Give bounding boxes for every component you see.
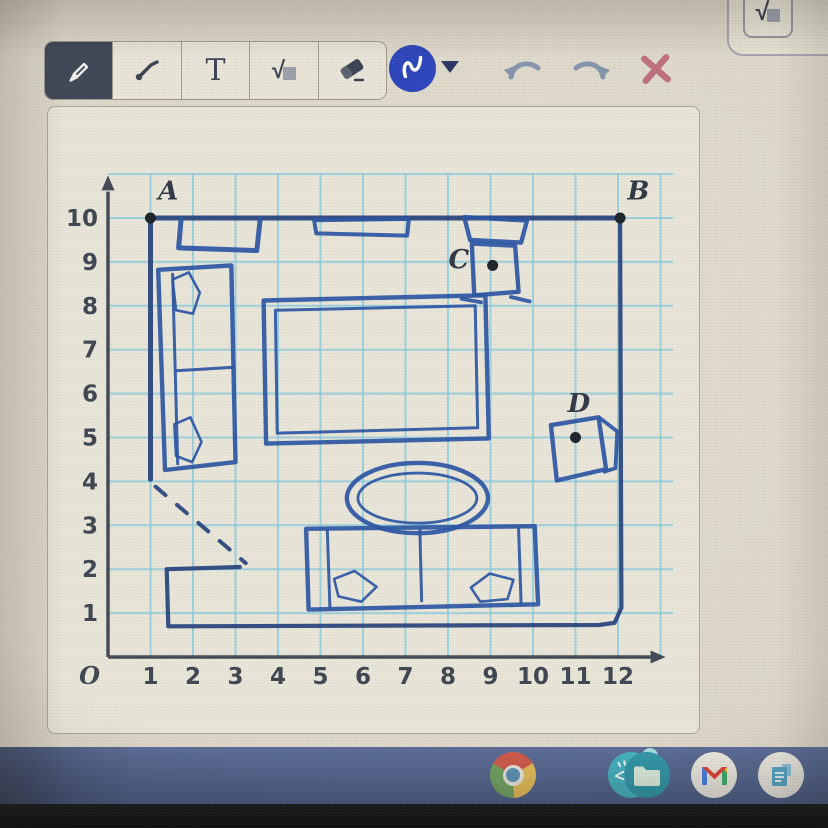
svg-text:4: 4 xyxy=(270,664,286,690)
svg-text:1: 1 xyxy=(142,664,158,690)
clear-button[interactable] xyxy=(638,52,674,88)
svg-text:10: 10 xyxy=(66,206,98,232)
pencil-tool-button[interactable] xyxy=(45,42,113,99)
svg-text:C: C xyxy=(449,245,470,275)
eraser-icon xyxy=(335,54,369,87)
tool-group: T √ xyxy=(44,41,387,100)
svg-text:O: O xyxy=(79,661,100,690)
text-tool-button[interactable]: T xyxy=(182,42,250,99)
sqrt-insert-icon: √ xyxy=(756,0,781,25)
redo-button[interactable] xyxy=(569,50,613,88)
svg-text:3: 3 xyxy=(227,664,243,690)
svg-text:8: 8 xyxy=(440,664,456,690)
svg-text:9: 9 xyxy=(482,664,498,690)
svg-text:1: 1 xyxy=(82,601,98,627)
pencil-icon xyxy=(64,54,94,87)
svg-text:11: 11 xyxy=(559,664,591,690)
svg-text:5: 5 xyxy=(82,426,98,452)
sqrt-icon: √ xyxy=(272,59,296,83)
files-icon[interactable] xyxy=(624,752,670,798)
svg-text:2: 2 xyxy=(185,664,201,690)
undo-icon xyxy=(501,76,545,91)
drawing-canvas[interactable]: 12345678910111212345678910OABCD xyxy=(47,106,700,734)
svg-text:6: 6 xyxy=(82,382,98,408)
svg-text:7: 7 xyxy=(82,338,98,364)
floor-plan-graph: 12345678910111212345678910OABCD xyxy=(48,107,699,733)
docs-icon[interactable] xyxy=(758,752,804,798)
screen-photo: T √ xyxy=(0,0,828,828)
svg-text:4: 4 xyxy=(82,469,98,495)
line-icon xyxy=(131,53,163,88)
svg-text:3: 3 xyxy=(82,513,98,539)
svg-text:8: 8 xyxy=(82,294,98,320)
redo-icon xyxy=(569,76,613,91)
svg-text:A: A xyxy=(155,177,178,207)
toolbar: T √ xyxy=(0,0,828,105)
taskbar-shelf xyxy=(0,747,828,804)
svg-text:B: B xyxy=(626,177,649,207)
close-x-icon xyxy=(639,74,673,89)
svg-text:5: 5 xyxy=(312,664,328,690)
stroke-style-button[interactable] xyxy=(389,45,436,92)
undo-button[interactable] xyxy=(501,50,545,88)
text-tool-label: T xyxy=(206,56,226,86)
svg-text:7: 7 xyxy=(397,664,413,690)
eraser-tool-button[interactable] xyxy=(319,42,386,99)
insert-sqrt-button[interactable]: √ xyxy=(743,0,793,38)
svg-text:6: 6 xyxy=(355,664,371,690)
gmail-icon[interactable] xyxy=(691,752,737,798)
sqrt-tool-button[interactable]: √ xyxy=(250,42,318,99)
scribble-icon xyxy=(394,48,432,89)
chrome-icon[interactable] xyxy=(490,752,536,798)
line-tool-button[interactable] xyxy=(113,42,181,99)
math-panel: √ xyxy=(727,0,828,56)
svg-text:2: 2 xyxy=(82,557,98,583)
svg-text:10: 10 xyxy=(517,664,549,690)
svg-text:D: D xyxy=(567,389,591,419)
svg-text:9: 9 xyxy=(82,250,98,276)
svg-text:12: 12 xyxy=(602,664,634,690)
screen-bezel xyxy=(0,804,828,828)
stroke-style-dropdown-caret-icon[interactable] xyxy=(441,61,459,73)
